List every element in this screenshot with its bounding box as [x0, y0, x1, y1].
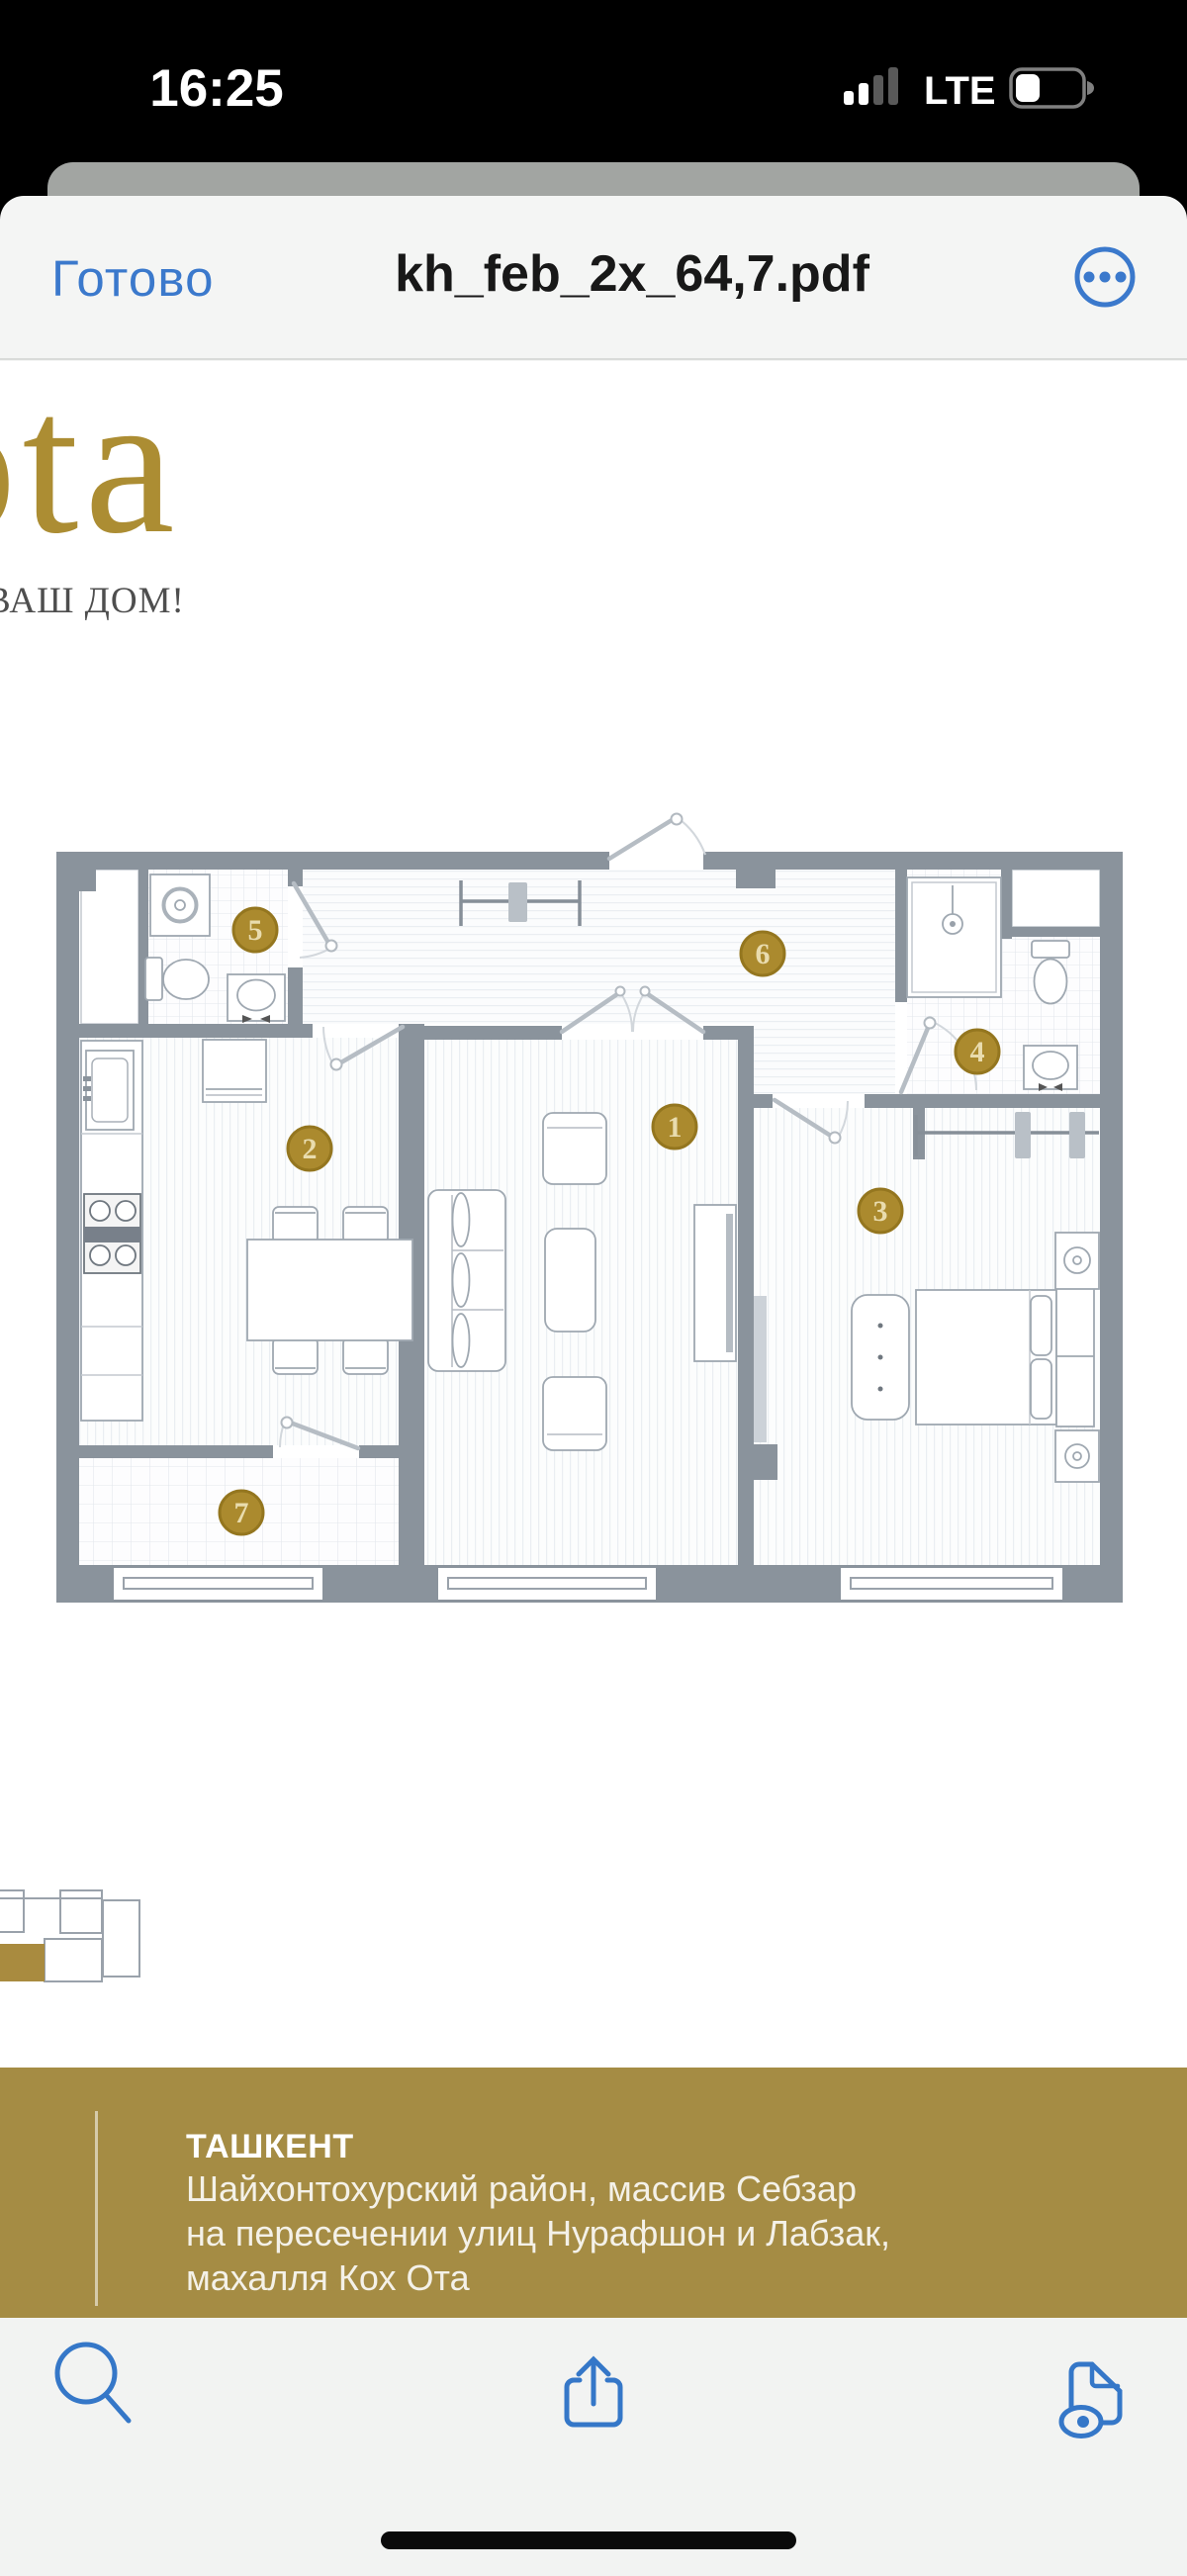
svg-text:LTE: LTE: [924, 69, 996, 113]
svg-text:5: 5: [248, 914, 263, 947]
svg-text:7: 7: [234, 1497, 249, 1529]
svg-text:3: 3: [873, 1195, 888, 1228]
svg-text:1: 1: [668, 1111, 683, 1144]
svg-text:2: 2: [303, 1133, 318, 1165]
svg-text:4: 4: [970, 1036, 985, 1068]
svg-text:6: 6: [756, 938, 771, 970]
